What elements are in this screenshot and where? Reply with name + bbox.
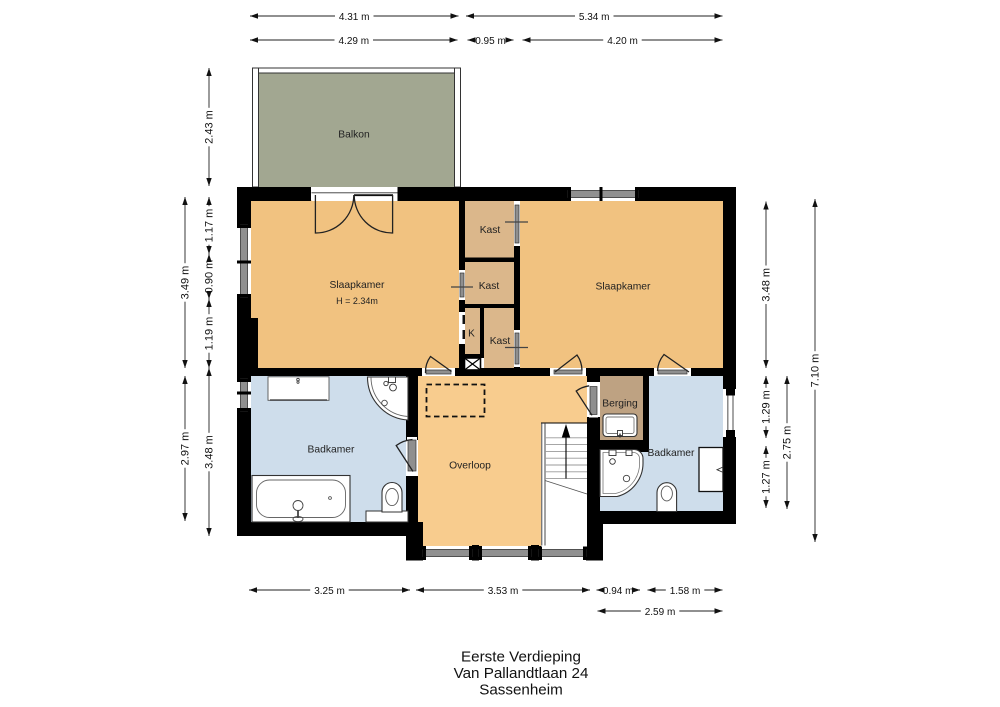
svg-text:3.48 m: 3.48 m (761, 268, 773, 302)
svg-text:Sassenheim: Sassenheim (479, 682, 563, 699)
svg-text:Kast: Kast (480, 225, 501, 236)
svg-text:1.17 m: 1.17 m (204, 209, 216, 243)
svg-text:2.97 m: 2.97 m (180, 432, 192, 466)
svg-text:K: K (468, 329, 475, 340)
svg-text:Slaapkamer: Slaapkamer (330, 280, 386, 291)
svg-text:3.49 m: 3.49 m (180, 266, 192, 300)
svg-text:H = 2.34m: H = 2.34m (336, 296, 378, 306)
svg-text:2.75 m: 2.75 m (782, 426, 794, 460)
svg-text:Van Pallandtlaan 24: Van Pallandtlaan 24 (454, 665, 589, 682)
svg-text:Slaapkamer: Slaapkamer (596, 282, 652, 293)
svg-text:1.58 m: 1.58 m (670, 586, 701, 597)
svg-text:0.90 m: 0.90 m (204, 260, 216, 294)
svg-text:0.95 m: 0.95 m (475, 36, 506, 47)
svg-text:Eerste Verdieping: Eerste Verdieping (461, 649, 581, 666)
svg-text:Kast: Kast (490, 336, 511, 347)
svg-text:2.43 m: 2.43 m (204, 110, 216, 144)
svg-text:4.20 m: 4.20 m (607, 36, 638, 47)
svg-text:7.10 m: 7.10 m (810, 354, 822, 388)
svg-text:5.34 m: 5.34 m (579, 12, 610, 23)
svg-text:3.48 m: 3.48 m (204, 435, 216, 469)
svg-text:4.31 m: 4.31 m (339, 12, 370, 23)
svg-text:Balkon: Balkon (338, 130, 370, 141)
svg-text:0.94 m: 0.94 m (603, 586, 634, 597)
svg-text:Kast: Kast (479, 281, 500, 292)
svg-text:4.29 m: 4.29 m (339, 36, 370, 47)
svg-text:1.27 m: 1.27 m (761, 460, 773, 494)
svg-text:Berging: Berging (602, 399, 638, 410)
svg-text:1.29 m: 1.29 m (761, 390, 773, 424)
svg-text:3.25 m: 3.25 m (314, 586, 345, 597)
svg-text:Overloop: Overloop (449, 461, 491, 472)
svg-text:3.53 m: 3.53 m (488, 586, 519, 597)
svg-text:Badkamer: Badkamer (308, 445, 356, 456)
svg-text:Badkamer: Badkamer (648, 448, 696, 459)
svg-text:2.59 m: 2.59 m (645, 607, 676, 618)
svg-text:1.19 m: 1.19 m (204, 317, 216, 351)
